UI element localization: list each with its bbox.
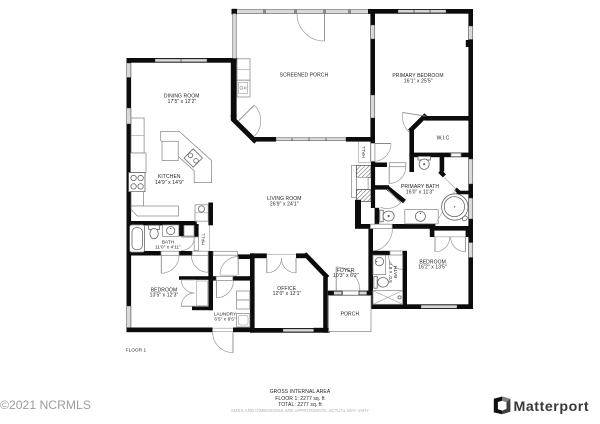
svg-text:PORCH: PORCH xyxy=(341,312,360,318)
svg-text:16'2" x 13'5": 16'2" x 13'5" xyxy=(418,265,447,271)
svg-text:16'0" x 11'3": 16'0" x 11'3" xyxy=(406,189,434,195)
svg-text:26'9" x 24'1": 26'9" x 24'1" xyxy=(270,202,299,208)
svg-text:GROSS INTERNAL AREA: GROSS INTERNAL AREA xyxy=(270,389,331,395)
svg-text:6'5" x 8'5": 6'5" x 8'5" xyxy=(214,317,235,322)
svg-text:©2021 NCRMLS: ©2021 NCRMLS xyxy=(0,398,91,412)
svg-text:HALL: HALL xyxy=(201,233,206,245)
svg-text:W.I.C: W.I.C xyxy=(437,136,450,142)
svg-text:SCREENED PORCH: SCREENED PORCH xyxy=(280,72,329,78)
svg-text:FLOOR 1: 2277 sq. ft: FLOOR 1: 2277 sq. ft xyxy=(275,396,325,402)
svg-text:FLOOR 1: FLOOR 1 xyxy=(126,348,147,353)
svg-text:BATH: BATH xyxy=(393,266,398,278)
svg-text:16'1" x 25'5": 16'1" x 25'5" xyxy=(404,79,433,85)
svg-text:10'3" x 6'2": 10'3" x 6'2" xyxy=(333,273,359,279)
svg-text:Matterport: Matterport xyxy=(514,399,590,415)
svg-text:11'0" x 4'11": 11'0" x 4'11" xyxy=(155,244,181,249)
svg-text:12'0" x 12'1": 12'0" x 12'1" xyxy=(273,291,302,297)
svg-text:HALL: HALL xyxy=(361,146,366,158)
svg-text:17'5" x 12'2": 17'5" x 12'2" xyxy=(168,99,197,105)
svg-text:SIZES AND DIMENSIONS ARE APPRO: SIZES AND DIMENSIONS ARE APPROXIMATE, AC… xyxy=(231,408,369,413)
svg-text:5'0" x 8'7": 5'0" x 8'7" xyxy=(388,261,393,282)
svg-text:14'9" x 14'9": 14'9" x 14'9" xyxy=(155,180,184,186)
svg-text:13'5" x 12'3": 13'5" x 12'3" xyxy=(150,293,179,299)
